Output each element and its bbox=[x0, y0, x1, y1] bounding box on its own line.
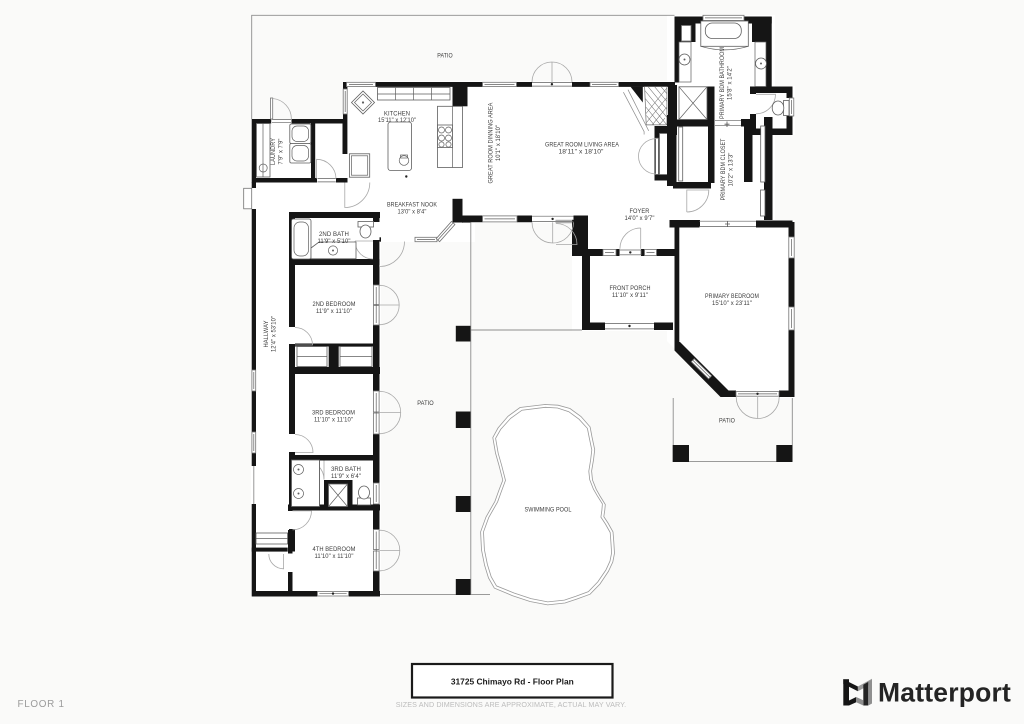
svg-text:PATIO: PATIO bbox=[417, 400, 434, 407]
svg-text:LAUNDRY: LAUNDRY bbox=[270, 137, 277, 165]
svg-text:10'1" x 18'10": 10'1" x 18'10" bbox=[495, 125, 502, 161]
svg-text:4TH BEDROOM: 4TH BEDROOM bbox=[313, 546, 356, 553]
svg-text:GREAT ROOM LIVING AREA: GREAT ROOM LIVING AREA bbox=[545, 142, 620, 149]
svg-text:11'9" x 11'10": 11'9" x 11'10" bbox=[316, 308, 352, 315]
svg-text:11'10" x 11'10": 11'10" x 11'10" bbox=[314, 417, 353, 424]
svg-text:31725 Chimayo Rd - Floor Plan: 31725 Chimayo Rd - Floor Plan bbox=[451, 677, 574, 687]
svg-text:15'8" x 14'2": 15'8" x 14'2" bbox=[727, 66, 734, 100]
svg-text:3RD BATH: 3RD BATH bbox=[331, 466, 361, 473]
svg-text:SIZES AND DIMENSIONS ARE APPRO: SIZES AND DIMENSIONS ARE APPROXIMATE, AC… bbox=[396, 700, 626, 709]
svg-text:13'0" x 8'4": 13'0" x 8'4" bbox=[398, 209, 427, 216]
svg-text:11'10" x 11'10": 11'10" x 11'10" bbox=[315, 553, 354, 560]
svg-text:FOYER: FOYER bbox=[630, 208, 650, 215]
svg-text:14'0" x 9'7": 14'0" x 9'7" bbox=[625, 215, 655, 222]
svg-text:PRIMARY BDM BATHROOM: PRIMARY BDM BATHROOM bbox=[719, 47, 726, 119]
svg-text:2ND BEDROOM: 2ND BEDROOM bbox=[313, 301, 356, 308]
svg-text:BREAKFAST NOOK: BREAKFAST NOOK bbox=[387, 202, 438, 209]
svg-text:15'10" x 23'11": 15'10" x 23'11" bbox=[712, 300, 752, 307]
svg-text:HALLWAY: HALLWAY bbox=[263, 320, 270, 348]
svg-text:3RD BEDROOM: 3RD BEDROOM bbox=[312, 410, 355, 417]
svg-text:PRIMARY BEDROOM: PRIMARY BEDROOM bbox=[705, 293, 759, 300]
svg-text:GREAT ROOM DINNING AREA: GREAT ROOM DINNING AREA bbox=[488, 102, 495, 184]
svg-text:15'11" x 12'10": 15'11" x 12'10" bbox=[378, 117, 416, 124]
svg-text:7'9" x 7'9": 7'9" x 7'9" bbox=[278, 139, 285, 165]
svg-text:PRIMARY BDM CLOSET: PRIMARY BDM CLOSET bbox=[720, 138, 727, 200]
svg-text:Matterport: Matterport bbox=[878, 678, 1011, 708]
svg-text:PATIO: PATIO bbox=[437, 53, 453, 60]
svg-text:11'9" x 5'10": 11'9" x 5'10" bbox=[318, 238, 351, 245]
svg-text:SWIMMING POOL: SWIMMING POOL bbox=[525, 507, 572, 514]
svg-text:18'11" x 18'10": 18'11" x 18'10" bbox=[559, 149, 604, 156]
svg-text:FLOOR 1: FLOOR 1 bbox=[18, 699, 65, 710]
svg-text:11'9" x 6'4": 11'9" x 6'4" bbox=[331, 473, 361, 480]
svg-text:10'2" x 13'3": 10'2" x 13'3" bbox=[728, 153, 735, 187]
svg-text:FRONT PORCH: FRONT PORCH bbox=[610, 285, 651, 292]
svg-text:PATIO: PATIO bbox=[719, 418, 735, 425]
svg-text:12'4" x 53'10": 12'4" x 53'10" bbox=[271, 316, 278, 352]
svg-text:11'10" x 9'11": 11'10" x 9'11" bbox=[612, 292, 648, 299]
